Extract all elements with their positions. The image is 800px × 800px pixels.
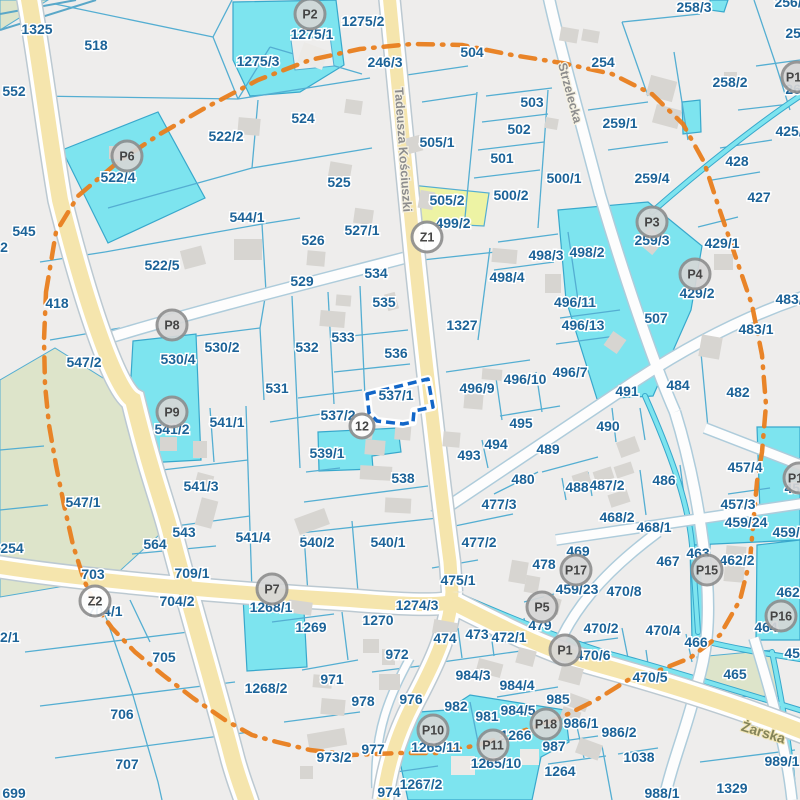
parcel-label-1267-2: 1267/2 — [400, 776, 443, 792]
parcel-label-470-2: 470/2 — [583, 620, 618, 636]
parcel-label-541-3: 541/3 — [183, 478, 218, 494]
parcel-label-539-1: 539/1 — [309, 445, 344, 461]
map-marker-label-12[interactable]: 12 — [355, 420, 369, 434]
parcel-label-978: 978 — [351, 693, 375, 709]
building — [385, 497, 412, 513]
parcel-label-518: 518 — [84, 37, 108, 53]
parcel-label-538: 538 — [391, 470, 415, 486]
parcel-label-258-2: 258/2 — [712, 74, 747, 90]
parcel-label-526: 526 — [301, 232, 325, 248]
parcel-label-527-1: 527/1 — [344, 222, 379, 238]
building — [364, 439, 385, 456]
map-marker-label-P8[interactable]: P8 — [164, 319, 179, 333]
parcel-label-482: 482 — [726, 384, 750, 400]
building — [319, 310, 345, 328]
parcel-label-505-2: 505/2 — [429, 192, 464, 208]
parcel-label-495: 495 — [509, 415, 533, 431]
map-marker-label-P5[interactable]: P5 — [534, 601, 549, 615]
building — [234, 239, 262, 260]
building — [193, 441, 207, 458]
parcel-label-493: 493 — [457, 447, 481, 463]
parcel-label-487-2: 487/2 — [589, 477, 624, 493]
building — [300, 766, 313, 779]
parcel-label-533: 533 — [331, 329, 355, 345]
parcel-label-972: 972 — [385, 646, 409, 662]
map-marker-label-P2[interactable]: P2 — [302, 8, 317, 22]
parcel-label-457-4: 457/4 — [727, 459, 762, 475]
parcel-label-522-5: 522/5 — [144, 257, 179, 273]
parcel-label-470-4: 470/4 — [645, 622, 680, 638]
parcel-label-246-3: 246/3 — [367, 54, 402, 70]
parcel-label-536: 536 — [384, 345, 408, 361]
parcel-label-1325: 1325 — [21, 21, 52, 37]
parcel-label-462-1: 462/1 — [776, 584, 800, 600]
parcel-label-1268-2: 1268/2 — [245, 680, 288, 696]
parcel-label-473: 473 — [465, 626, 489, 642]
parcel-label-478: 478 — [532, 556, 556, 572]
parcel-label-500-1: 500/1 — [546, 170, 581, 186]
parcel-label-535: 535 — [372, 294, 396, 310]
parcel-label-474: 474 — [433, 630, 457, 646]
parcel-label-496-7: 496/7 — [552, 364, 587, 380]
parcel-label-470-5: 470/5 — [632, 669, 667, 685]
parcel-label-496-9: 496/9 — [459, 380, 494, 396]
parcel-label-1269: 1269 — [295, 619, 326, 635]
parcel-label-498-3: 498/3 — [528, 247, 563, 263]
parcel-label-427: 427 — [747, 189, 771, 205]
parcel-label-477-3: 477/3 — [481, 496, 516, 512]
parcel-label-483-1: 483/1 — [738, 321, 773, 337]
parcel-label-973-2: 973/2 — [316, 749, 351, 765]
building — [714, 254, 733, 270]
building — [520, 749, 539, 765]
parcel-label-468-2: 468/2 — [599, 509, 634, 525]
building — [544, 117, 559, 130]
parcel-label-496-13: 496/13 — [562, 317, 605, 333]
parcel-label-468-1: 468/1 — [636, 519, 671, 535]
parcel-label-429-1: 429/1 — [704, 235, 739, 251]
parcel-label-1038: 1038 — [623, 749, 654, 765]
parcel-label-503: 503 — [520, 94, 544, 110]
parcel-label-465: 465 — [723, 666, 747, 682]
parcel-label-706: 706 — [110, 706, 134, 722]
building — [698, 334, 723, 359]
parcel-label-459-1: 459/1 — [772, 524, 800, 540]
building — [360, 465, 393, 481]
parcel-label-462-2: 462/2 — [719, 552, 754, 568]
parcel-label-425-1: 425/1 — [775, 123, 800, 139]
map-marker-label-P16[interactable]: P16 — [770, 610, 792, 624]
parcel-label-472-1: 472/1 — [491, 629, 526, 645]
parcel-label-547-1: 547/1 — [65, 494, 100, 510]
parcel-label-702-1: 702/1 — [0, 629, 20, 645]
building — [545, 274, 561, 293]
parcel-label-976: 976 — [399, 691, 423, 707]
map-marker-label-P18[interactable]: P18 — [535, 718, 557, 732]
parcel-label-704-2: 704/2 — [159, 593, 194, 609]
parcel-label-1327: 1327 — [446, 317, 477, 333]
parcel-label-490: 490 — [596, 418, 620, 434]
map-marker-label-P9[interactable]: P9 — [164, 406, 179, 420]
parcel-label-534: 534 — [364, 265, 388, 281]
map-marker-label-P14[interactable]: P14 — [788, 472, 800, 486]
parcel-label-475-1: 475/1 — [440, 572, 475, 588]
parcel-label-486: 486 — [652, 472, 676, 488]
parcel-label-459-24: 459/24 — [725, 514, 768, 530]
parcel-label-498-2: 498/2 — [569, 244, 604, 260]
building — [336, 294, 352, 306]
parcel-label-705: 705 — [152, 649, 176, 665]
parcel-label-989-1: 989/1 — [764, 753, 799, 769]
map-marker-label-P10[interactable]: P10 — [422, 724, 444, 738]
parcel-label-494: 494 — [484, 436, 508, 452]
parcel-label-541-1: 541/1 — [209, 414, 244, 430]
map-marker-label-P17[interactable]: P17 — [565, 564, 587, 578]
parcel-label-501: 501 — [490, 150, 514, 166]
parcel-label-258-3: 258/3 — [676, 0, 711, 15]
parcel-label-457-3: 457/3 — [720, 496, 755, 512]
building — [491, 248, 517, 264]
parcel-label-259-1: 259/1 — [602, 115, 637, 131]
parcel-label-498-4: 498/4 — [489, 269, 524, 285]
map-canvas[interactable]: Tadeusza KościuszkiStrzeleckaŻarska13255… — [0, 0, 800, 800]
parcel-label-470-8: 470/8 — [606, 583, 641, 599]
parcel-label-505-1: 505/1 — [419, 134, 454, 150]
parcel-label-537-1: 537/1 — [378, 387, 413, 403]
parcel-label-488: 488 — [565, 479, 589, 495]
parcel-label-552: 552 — [2, 83, 26, 99]
parcel-label-543: 543 — [172, 524, 196, 540]
parcel-label-502: 502 — [507, 121, 531, 137]
parcel-label-428: 428 — [725, 153, 749, 169]
parcel-label-971: 971 — [320, 671, 344, 687]
parcel-label-981: 981 — [475, 708, 499, 724]
parcel-label-529: 529 — [290, 273, 314, 289]
parcel-label-454: 454 — [784, 645, 800, 661]
map-marker-label-Z2[interactable]: Z2 — [88, 595, 103, 609]
parcel-label-1264: 1264 — [544, 763, 575, 779]
map-marker-label-P15[interactable]: P15 — [696, 564, 718, 578]
cadastral-map-svg: Tadeusza KościuszkiStrzeleckaŻarska13255… — [0, 0, 800, 800]
parcel-label-986-2: 986/2 — [601, 724, 636, 740]
parcel-label-496-10: 496/10 — [504, 371, 547, 387]
parcel-label-477-2: 477/2 — [461, 534, 496, 550]
parcel-label-1275-2: 1275/2 — [342, 13, 385, 29]
building — [379, 674, 400, 690]
map-marker-label-P7[interactable]: P7 — [264, 583, 279, 597]
parcel-label-254: 254 — [0, 540, 24, 556]
parcel-label-507: 507 — [644, 310, 668, 326]
building — [306, 250, 325, 267]
map-marker-label-P4[interactable]: P4 — [687, 268, 702, 282]
parcel-label-2: 2 — [0, 239, 8, 255]
map-marker-label-Z1[interactable]: Z1 — [420, 231, 435, 245]
parcel-label-544-1: 544/1 — [229, 209, 264, 225]
parcel-label-532: 532 — [295, 339, 319, 355]
parcel-label-984-5: 984/5 — [500, 702, 535, 718]
parcel-label-564: 564 — [143, 536, 167, 552]
map-marker-label-P3[interactable]: P3 — [644, 216, 659, 230]
parcel-label-541-4: 541/4 — [235, 529, 270, 545]
parcel-label-504: 504 — [460, 44, 484, 60]
parcel-label-984-4: 984/4 — [499, 677, 534, 693]
parcel-label-418: 418 — [45, 295, 69, 311]
parcel-label-480: 480 — [511, 471, 535, 487]
parcel-label-530-4: 530/4 — [160, 351, 195, 367]
parcel-label-985: 985 — [546, 691, 570, 707]
parcel-label-524: 524 — [291, 110, 315, 126]
building — [320, 698, 345, 716]
parcel-label-977: 977 — [361, 741, 385, 757]
parcel-label-467: 467 — [656, 553, 680, 569]
parcel-label-988-1: 988/1 — [644, 785, 679, 800]
parcel-label-982: 982 — [444, 698, 468, 714]
parcel-label-522-2: 522/2 — [208, 128, 243, 144]
parcel-label-531: 531 — [265, 380, 289, 396]
parcel-label-974: 974 — [377, 784, 401, 800]
parcel-label-489: 489 — [536, 441, 560, 457]
parcel-label-496-11: 496/11 — [554, 294, 596, 310]
building — [482, 368, 503, 381]
map-marker-label-P1[interactable]: P1 — [557, 644, 572, 658]
parcel-label-699: 699 — [2, 785, 26, 800]
parcel-label-540-1: 540/1 — [370, 534, 405, 550]
parcel-label-259-4: 259/4 — [634, 170, 669, 186]
parcel-label-545: 545 — [12, 223, 36, 239]
parcel-label-984-3: 984/3 — [455, 667, 490, 683]
parcel-label-530-2: 530/2 — [204, 339, 239, 355]
parcel-label-256: 256 — [785, 25, 800, 41]
parcel-label-484: 484 — [666, 377, 690, 393]
parcel-label-256-2: 256/2 — [774, 0, 800, 10]
building — [344, 99, 363, 115]
parcel-label-500-2: 500/2 — [493, 187, 528, 203]
map-marker-label-P13[interactable]: P13 — [786, 71, 800, 85]
parcel-label-466: 466 — [684, 634, 708, 650]
parcel-label-1275-3: 1275/3 — [237, 53, 280, 69]
parcel-label-547-2: 547/2 — [66, 354, 101, 370]
parcel-label-540-2: 540/2 — [299, 534, 334, 550]
parcel-label-1274-3: 1274/3 — [396, 597, 439, 613]
building — [160, 437, 177, 451]
parcel-label-254: 254 — [591, 54, 615, 70]
map-marker-label-P11[interactable]: P11 — [482, 739, 504, 753]
parcel-label-986-1: 986/1 — [563, 715, 598, 731]
parcel-label-491: 491 — [615, 383, 639, 399]
map-marker-label-P6[interactable]: P6 — [119, 150, 134, 164]
building — [442, 431, 460, 447]
building — [363, 639, 379, 653]
parcel-label-703: 703 — [81, 566, 105, 582]
parcel-label-1270: 1270 — [362, 612, 393, 628]
parcel-label-707: 707 — [115, 756, 139, 772]
parcel-label-709-1: 709/1 — [174, 565, 209, 581]
parcel-label-483-4: 483/4 — [775, 291, 800, 307]
parcel-label-525: 525 — [327, 174, 351, 190]
parcel-label-1329: 1329 — [716, 780, 747, 796]
